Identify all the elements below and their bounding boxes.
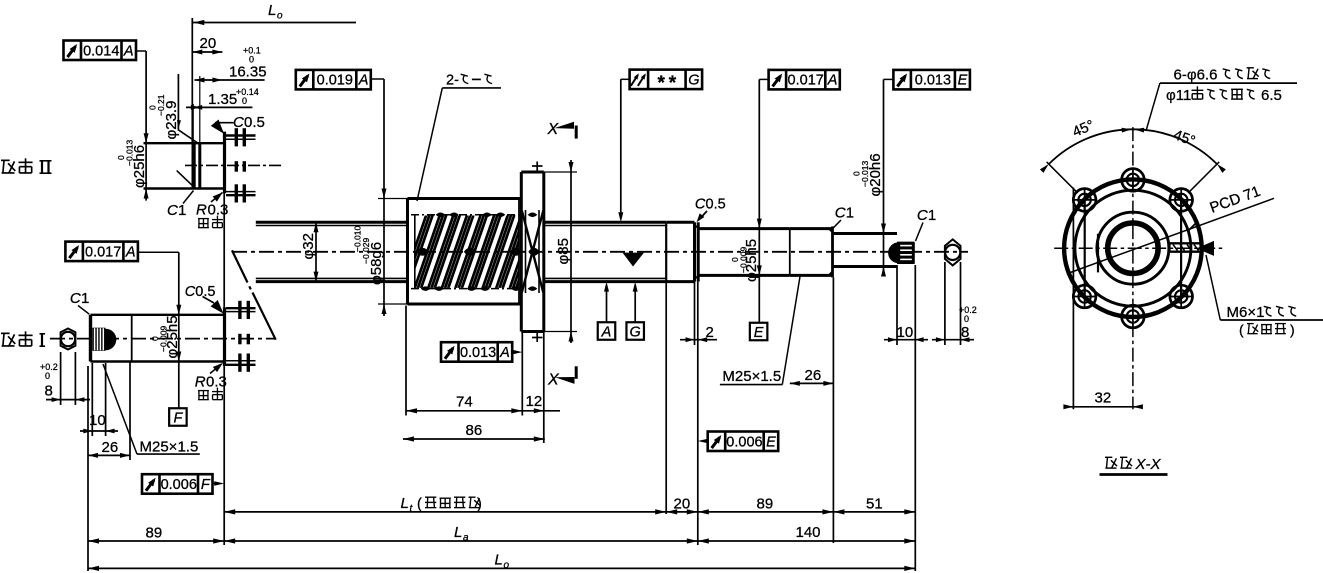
svg-text:L: L [495,552,503,569]
svg-text:M25×1.5: M25×1.5 [140,439,199,456]
svg-text:G: G [688,72,699,88]
svg-text:−0.013: −0.013 [860,160,870,187]
svg-text:(: ( [417,497,422,513]
svg-text:32: 32 [1095,390,1112,407]
svg-text:L: L [268,2,276,19]
svg-text:A: A [125,244,136,260]
svg-text:0.013: 0.013 [915,73,951,89]
svg-text:−0.009: −0.009 [739,246,749,273]
svg-text:C: C [185,284,196,300]
svg-text:1: 1 [178,202,186,219]
svg-text:8: 8 [45,383,53,400]
svg-text:0.006: 0.006 [161,477,197,493]
svg-text:X: X [547,372,560,389]
svg-text:1: 1 [846,205,854,222]
svg-text:M25×1.5: M25×1.5 [722,368,781,385]
svg-text:−0.013: −0.013 [125,139,135,166]
svg-text:10: 10 [897,324,914,341]
svg-text:2-: 2- [446,73,459,89]
svg-text:140: 140 [796,524,821,541]
svg-text:16.35: 16.35 [229,64,267,81]
svg-text:L: L [401,495,409,512]
svg-text:R: R [195,374,206,391]
svg-text:0.017: 0.017 [85,244,121,260]
svg-text:0.013: 0.013 [460,345,496,361]
svg-text:0.006: 0.006 [726,434,762,450]
svg-text:74: 74 [456,394,473,411]
svg-text:o: o [504,560,510,571]
svg-text:−0.21: −0.21 [156,94,166,116]
svg-text:0: 0 [242,96,247,106]
svg-text:C: C [835,205,846,222]
svg-text:): ) [477,497,482,513]
svg-text:8: 8 [961,324,969,341]
svg-text:2: 2 [706,324,714,341]
svg-text:26: 26 [805,367,822,384]
svg-text:φ11: φ11 [1166,87,1191,104]
svg-text:6.5: 6.5 [1261,87,1282,104]
svg-text:): ) [1290,322,1295,338]
svg-text:C: C [70,290,81,307]
svg-text:R: R [196,202,207,219]
svg-text:A: A [358,73,369,89]
svg-text:* *: * * [658,73,677,94]
svg-text:89: 89 [146,525,163,542]
svg-text:C: C [695,197,706,213]
svg-text:X-X: X-X [1135,456,1162,473]
svg-text:20: 20 [200,35,217,52]
svg-text:0: 0 [249,55,254,65]
svg-text:1.35: 1.35 [208,91,237,108]
svg-text:10: 10 [89,412,106,429]
svg-text:−0.029: −0.029 [361,237,371,264]
svg-text:E: E [958,73,968,89]
svg-text:12: 12 [526,393,543,410]
svg-text:0.017: 0.017 [788,73,824,89]
svg-text:A: A [601,325,612,341]
svg-text:F: F [201,477,211,493]
svg-text:C: C [917,207,928,224]
svg-text:E: E [766,434,776,450]
svg-text:0.5: 0.5 [706,197,726,213]
svg-text:1: 1 [928,207,936,224]
svg-text:M6×1: M6×1 [1227,304,1265,321]
svg-text:a: a [463,533,469,544]
svg-text:0.019: 0.019 [317,73,353,89]
svg-text:0: 0 [964,314,969,324]
svg-text:A: A [827,73,838,89]
svg-text:0.014: 0.014 [83,43,119,59]
svg-text:−0.009: −0.009 [159,325,169,352]
svg-text:C: C [167,202,178,219]
svg-text:20: 20 [674,496,691,513]
svg-text:+0.14: +0.14 [236,87,259,97]
svg-text:86: 86 [466,422,483,439]
svg-text:0: 0 [45,371,50,381]
svg-text:A: A [123,43,134,59]
svg-text:(: ( [1239,322,1244,338]
svg-text:C: C [233,114,244,131]
svg-text:E: E [754,325,764,341]
svg-text:51: 51 [866,496,883,513]
svg-text:L: L [454,524,462,541]
svg-text:X: X [547,121,560,138]
svg-text:F: F [173,411,183,427]
svg-text:A: A [499,345,510,361]
svg-text:o: o [277,11,283,22]
svg-text:0.5: 0.5 [244,114,265,131]
svg-text:φ32: φ32 [300,233,317,259]
svg-text:1: 1 [81,290,89,307]
svg-text:G: G [630,325,641,341]
svg-text:6-φ6.6: 6-φ6.6 [1174,67,1218,84]
svg-text:φ85: φ85 [555,238,572,264]
svg-text:89: 89 [757,496,774,513]
svg-text:0.3: 0.3 [206,374,227,391]
svg-text:26: 26 [102,439,119,456]
